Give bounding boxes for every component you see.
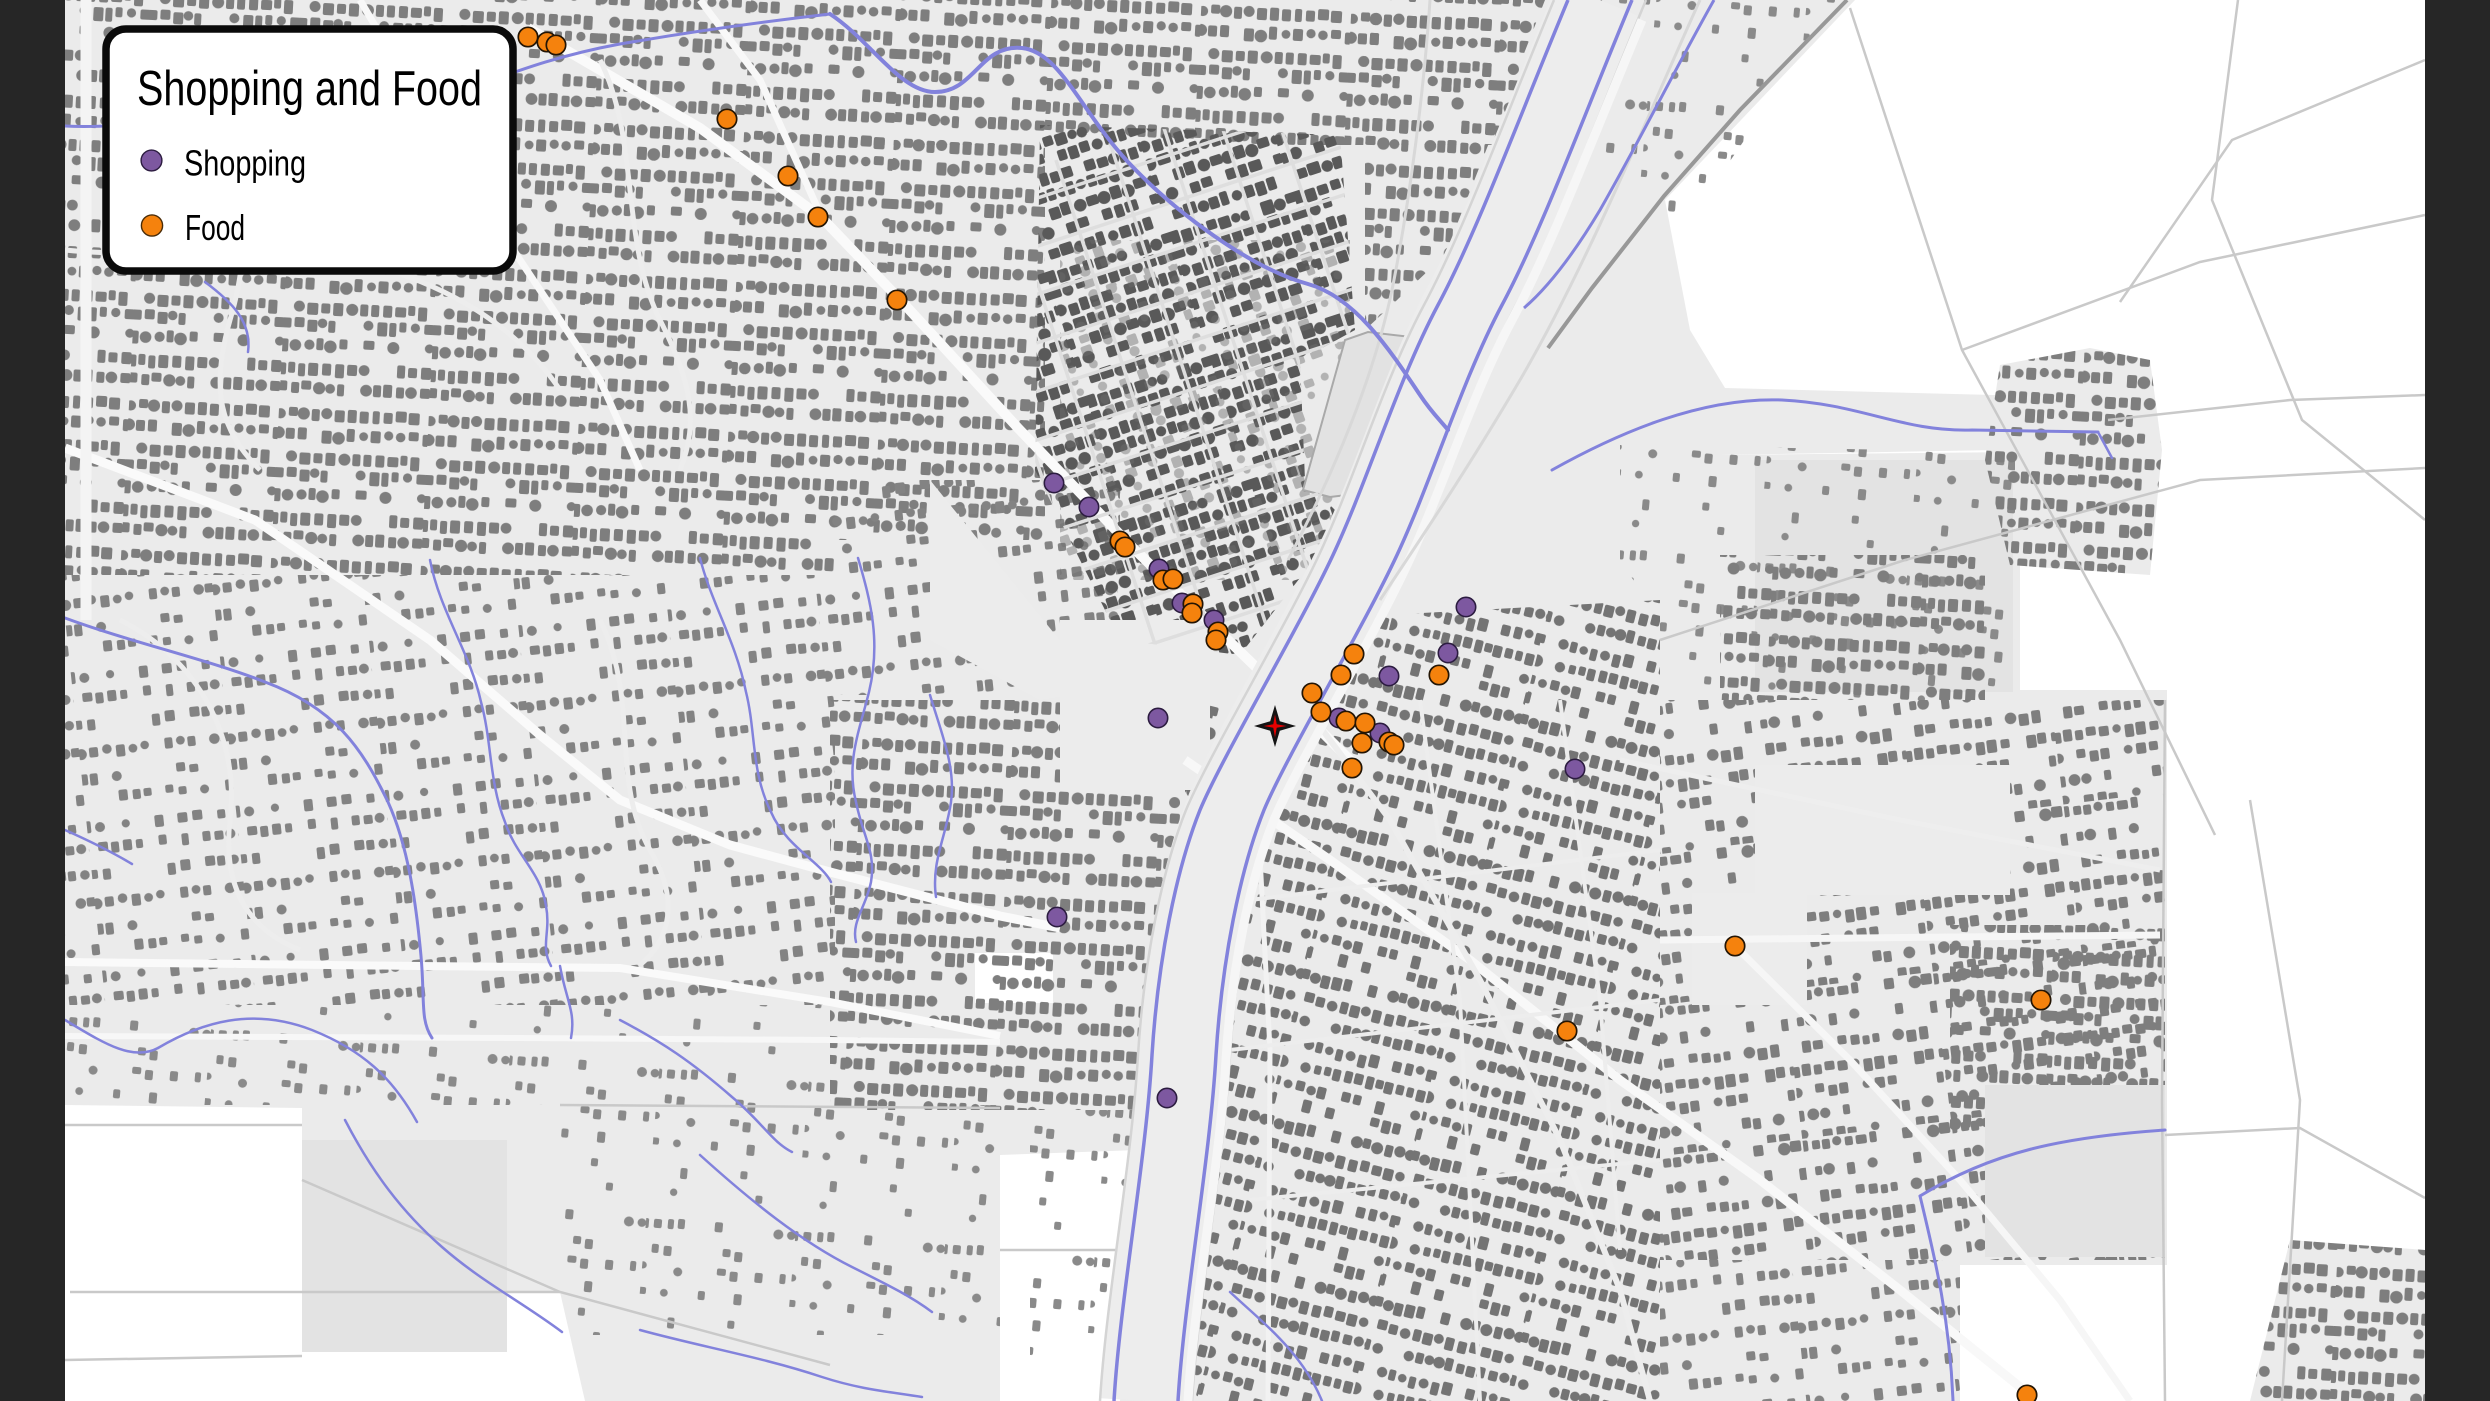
svg-text:Food: Food — [185, 207, 245, 248]
svg-text:Shopping and Food: Shopping and Food — [137, 62, 482, 116]
svg-text:Shopping: Shopping — [184, 143, 306, 184]
